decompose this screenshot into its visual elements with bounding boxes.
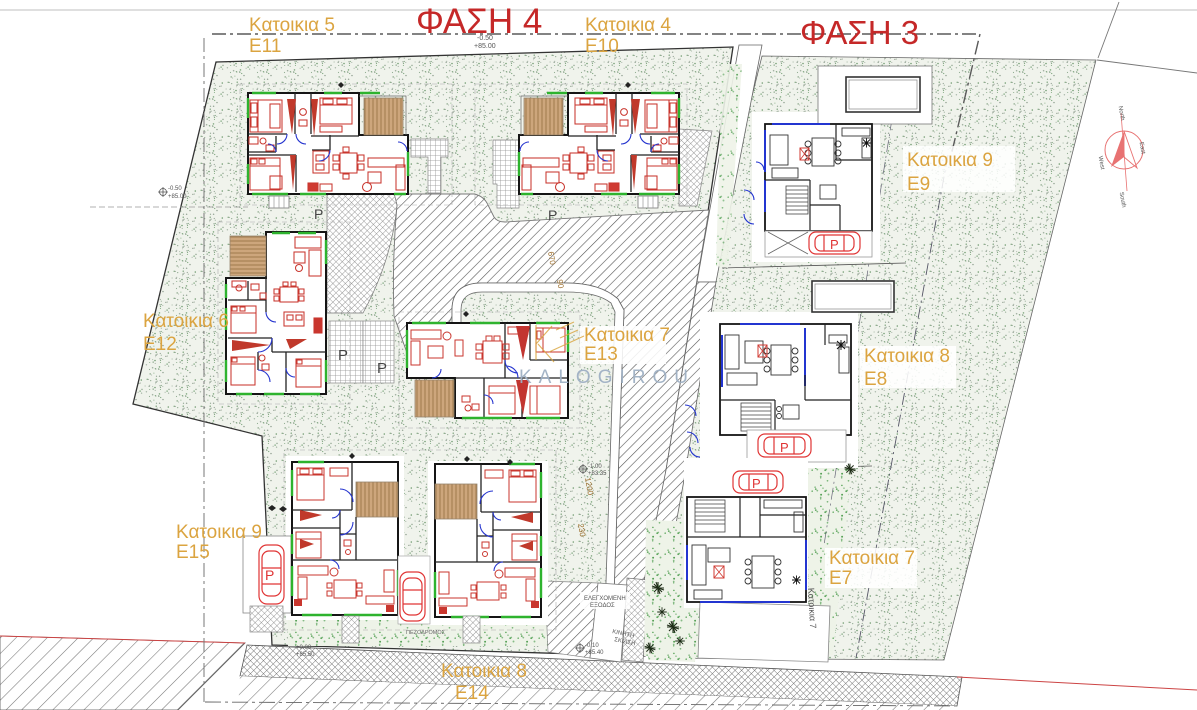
svg-text:P: P (548, 207, 557, 223)
svg-text:Κατοικια 8: Κατοικια 8 (864, 346, 950, 367)
svg-text:+0.00: +0.00 (296, 645, 312, 651)
svg-text:Κατοικια 4: Κατοικια 4 (585, 15, 671, 36)
svg-text:ΠΕΖΟΔΡΟΜΟΣ: ΠΕΖΟΔΡΟΜΟΣ (406, 630, 446, 636)
svg-text:P: P (752, 476, 761, 491)
svg-text:P: P (314, 206, 323, 222)
svg-text:E11: E11 (249, 36, 281, 57)
svg-text:+85.40: +85.40 (585, 650, 604, 656)
svg-text:Ε14: Ε14 (455, 683, 489, 704)
svg-text:+85.00: +85.00 (168, 194, 187, 200)
svg-text:-0.50: -0.50 (168, 186, 182, 192)
svg-text:E8: E8 (864, 369, 887, 390)
svg-text:E15: E15 (176, 542, 210, 563)
svg-text:Κατοικια 5: Κατοικια 5 (249, 15, 335, 36)
svg-text:E10: E10 (585, 36, 619, 57)
svg-text:-0.50: -0.50 (477, 35, 493, 42)
svg-text:ΦΑΣΗ 3: ΦΑΣΗ 3 (800, 14, 919, 51)
svg-text:P: P (265, 567, 274, 583)
svg-text:P: P (830, 237, 839, 252)
svg-text:Κατοικια 9: Κατοικια 9 (907, 150, 993, 171)
svg-text:Κατοικια 9: Κατοικια 9 (176, 522, 262, 543)
svg-text:E9: E9 (907, 174, 930, 195)
svg-text:P: P (780, 440, 789, 455)
svg-text:KALOGIROU: KALOGIROU (519, 367, 695, 388)
svg-text:Κατοικια 7: Κατοικια 7 (829, 548, 915, 569)
svg-text:Κατοικια 8: Κατοικια 8 (441, 661, 527, 682)
svg-text:+85.50: +85.50 (296, 652, 315, 658)
svg-text:Κατοικια 7: Κατοικια 7 (584, 325, 670, 346)
svg-text:P: P (377, 360, 387, 377)
svg-text:P: P (338, 347, 348, 364)
svg-text:ΕΛΕΓΧΟΜΕΝΗ: ΕΛΕΓΧΟΜΕΝΗ (584, 596, 626, 602)
svg-text:Κατοικια 6: Κατοικια 6 (143, 311, 229, 332)
svg-text:E12: E12 (143, 334, 177, 355)
svg-text:Κατοικια 7: Κατοικια 7 (806, 588, 818, 629)
svg-text:Ε7: Ε7 (829, 568, 852, 589)
svg-text:+85.00: +85.00 (474, 43, 496, 50)
svg-text:-0.10: -0.10 (585, 643, 599, 649)
svg-text:E13: E13 (584, 344, 618, 365)
svg-text:ΕΞΟΔΟΣ: ΕΞΟΔΟΣ (590, 603, 615, 609)
svg-text:-1.00: -1.00 (588, 464, 602, 470)
